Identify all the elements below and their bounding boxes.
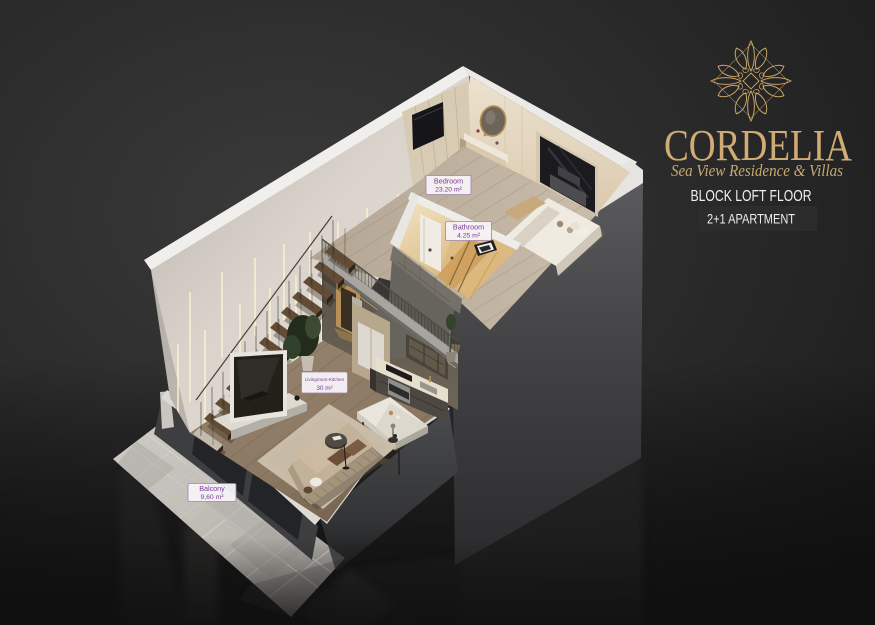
svg-text:Balcony: Balcony — [199, 484, 225, 493]
svg-text:BLOCK LOFT FLOOR: BLOCK LOFT FLOOR — [691, 188, 812, 205]
svg-text:Livingroom-Kitchen: Livingroom-Kitchen — [305, 377, 345, 382]
svg-text:30 m²: 30 m² — [316, 385, 332, 392]
svg-text:Bathroom: Bathroom — [453, 223, 484, 232]
svg-text:Bedroom: Bedroom — [434, 177, 463, 186]
svg-text:4.25 m²: 4.25 m² — [457, 233, 481, 240]
svg-text:Sea View Residence & Villas: Sea View Residence & Villas — [671, 161, 843, 180]
svg-text:9,60 m²: 9,60 m² — [200, 494, 224, 501]
svg-text:23.20 m²: 23.20 m² — [435, 187, 463, 194]
svg-text:2+1 APARTMENT: 2+1 APARTMENT — [707, 211, 795, 227]
